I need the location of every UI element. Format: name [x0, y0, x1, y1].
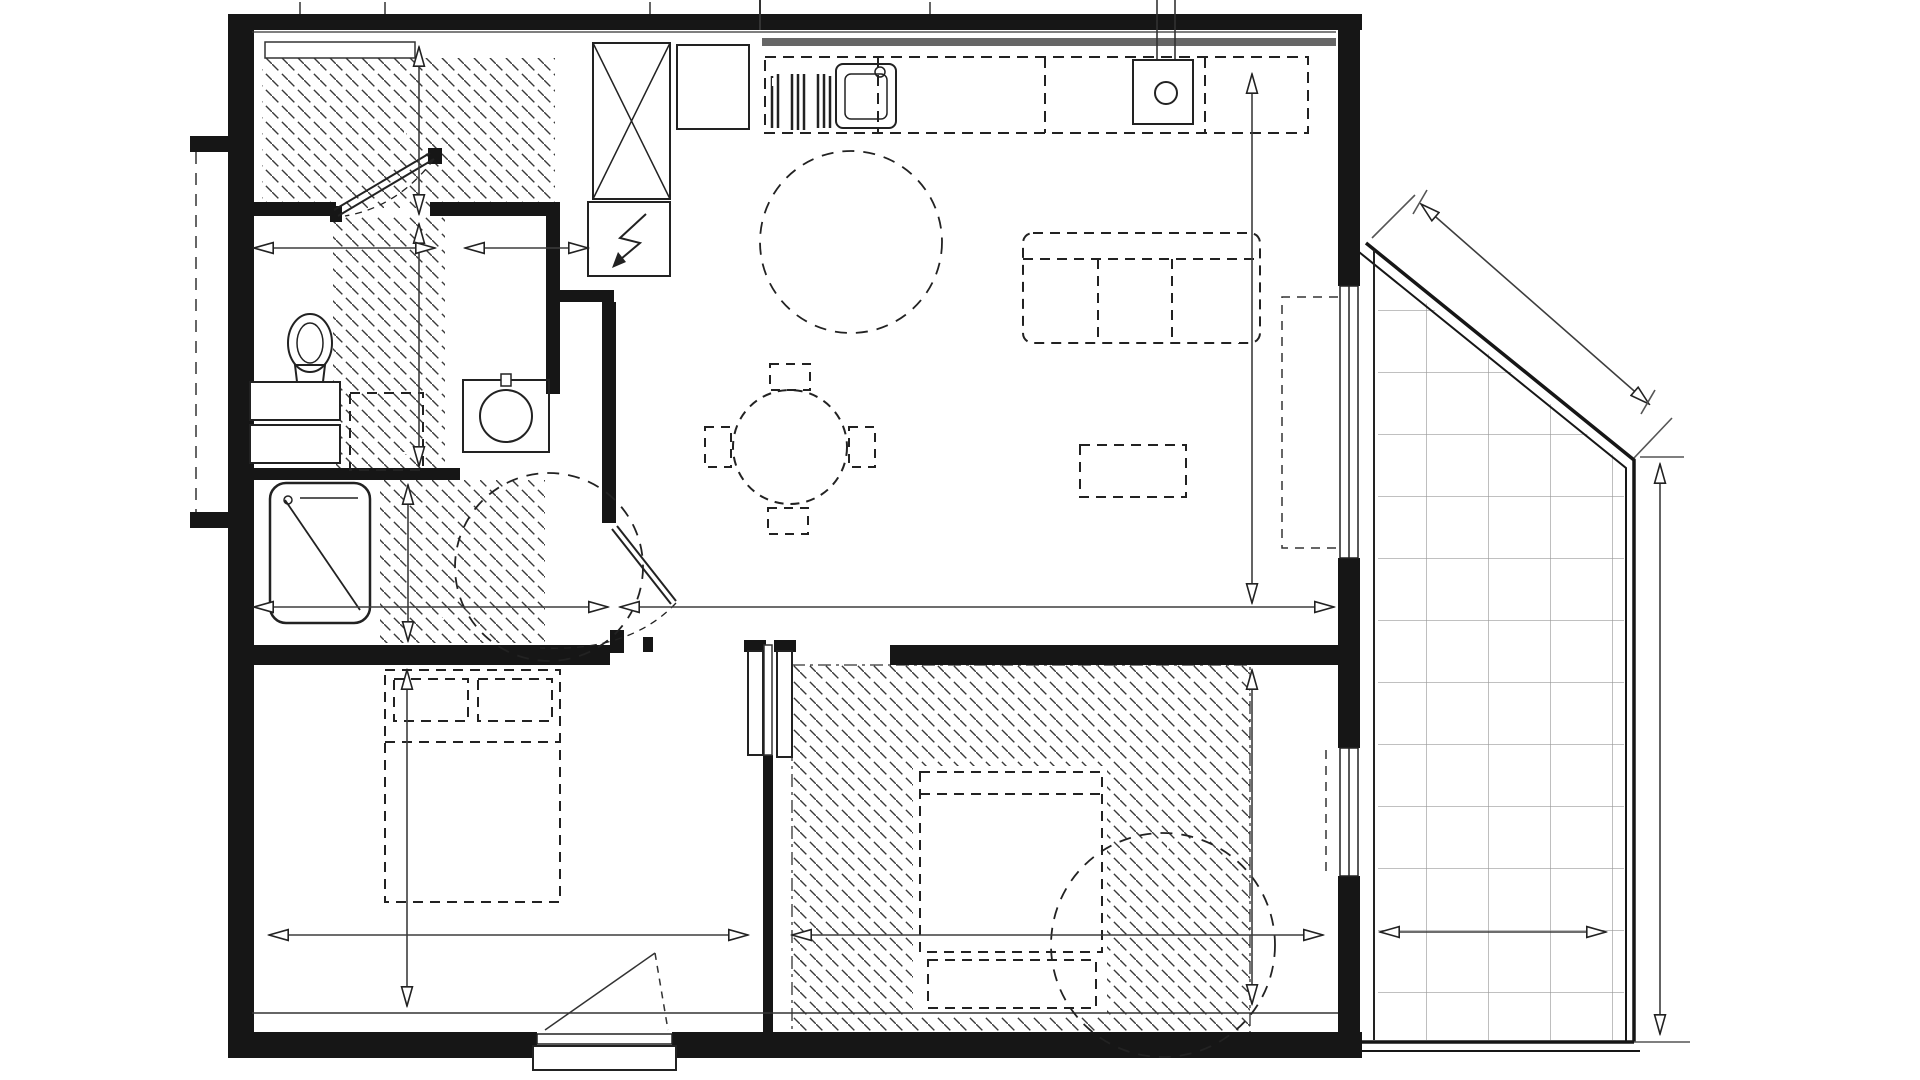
dim-label-sdb-depth [397, 559, 399, 567]
wall-right-middle [1338, 558, 1360, 748]
wall-left [228, 14, 254, 1058]
neighbor-wall-stub-top [190, 136, 230, 152]
fixture-label-cuisine [992, 76, 994, 84]
wall-bedroom-divider [763, 755, 773, 1032]
bed2-icon [385, 670, 560, 902]
room-label-wc [342, 298, 344, 306]
dim-label-balcon-length [1652, 750, 1654, 758]
fixture-label-machine-laver [400, 452, 408, 454]
electrical-panel-icon [588, 202, 670, 276]
dim-label-balcon-width [1490, 943, 1498, 945]
floor-plan [0, 0, 1920, 1080]
chambre2-door-leaf [748, 651, 763, 755]
storage-unit [250, 425, 340, 463]
wall-right-upper [1338, 14, 1360, 286]
room-label-chambre2 [569, 837, 571, 845]
shower-icon [270, 483, 370, 623]
balcony [1359, 243, 1640, 1051]
fixture-label-pf-sejour [1297, 530, 1299, 538]
fixture-label-refrigerateur [696, 147, 698, 155]
dishwasher-icon [772, 74, 830, 130]
fixture-label-gc [1597, 1018, 1599, 1026]
storage-unit [250, 382, 340, 420]
room-label-entree [510, 139, 512, 147]
wall-bottom-right [672, 1032, 1362, 1058]
fridge-icon [677, 45, 749, 129]
wall-right-lower [1338, 876, 1360, 1058]
fixture-label-fenetre-avant [686, 973, 688, 981]
dim-label-entree-depth [404, 127, 406, 135]
neighbor-wall-stub-bottom [190, 512, 230, 528]
wall-sdb-east [602, 302, 616, 523]
dim-label-wc-depth [393, 337, 395, 345]
wall-kitchen-corner [546, 290, 614, 302]
washbasin-icon [463, 374, 549, 452]
wall-corridor [546, 216, 560, 394]
counter-outline [765, 57, 1308, 133]
dining-table-icon [705, 364, 875, 534]
coffee-table-icon [1080, 445, 1186, 497]
wall-entree-wc-b [430, 202, 560, 216]
fixture-label-lave-vaisselle [772, 78, 774, 86]
dim-label-chambre1-depth [1238, 833, 1240, 841]
turning-circle-sejour [760, 151, 942, 333]
dim-label-chambre1-width [1051, 941, 1059, 943]
closet-icon [593, 43, 670, 199]
sejour-furniture [705, 151, 1260, 534]
room-label-sejour-cuisine [987, 374, 989, 382]
wall-entree-wc-a [248, 202, 336, 216]
dim-label-sejour-depth [1237, 335, 1239, 343]
wall-bottom-left [228, 1032, 537, 1058]
toilet-icon [288, 314, 332, 390]
sofa-icon [1023, 233, 1260, 343]
room-label-sdb [493, 545, 495, 553]
dim-label-sdb-width [436, 618, 444, 620]
sdb-door-leaf [617, 526, 676, 601]
floor-plan-drawing [0, 0, 1920, 1080]
room-label-balcon [1489, 754, 1491, 762]
wall-wc-sdb [248, 468, 460, 480]
kitchen [588, 43, 1308, 276]
fixture-label-pf-chambre [1297, 754, 1299, 762]
dim-label-chambre2-width [497, 942, 505, 944]
dim-label-chambre2-depth [390, 839, 392, 847]
sink-icon [836, 64, 896, 128]
fixture-label-placard [630, 58, 632, 66]
water-heater-icon [1133, 60, 1193, 124]
dim-label-wc-width [353, 255, 361, 257]
wall-middle-right [890, 645, 1338, 665]
dim-label-sejour-width [974, 618, 982, 620]
fav-window [537, 1034, 672, 1044]
wall-top [228, 14, 1362, 30]
balcony-tiles [1378, 264, 1624, 1040]
chambre1-door-leaf [777, 651, 792, 757]
fixture-label-chauffe-eau [1141, 73, 1143, 81]
dim-label-entry-passage [515, 255, 523, 257]
room-label-chambre1 [1167, 841, 1169, 849]
